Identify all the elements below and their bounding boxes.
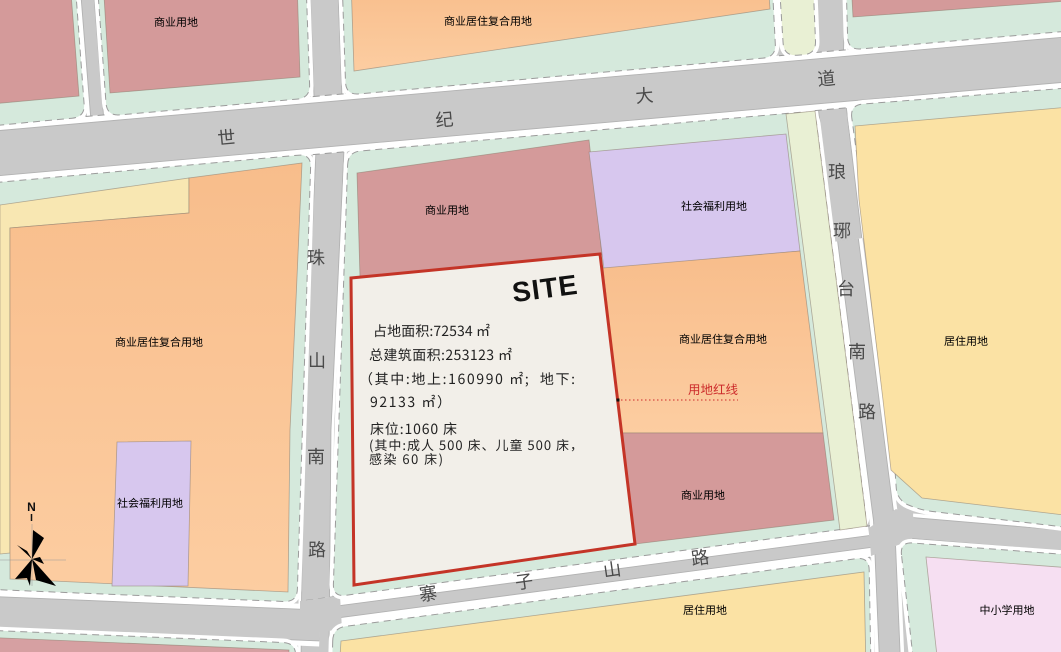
svg-text:N: N: [27, 500, 36, 514]
